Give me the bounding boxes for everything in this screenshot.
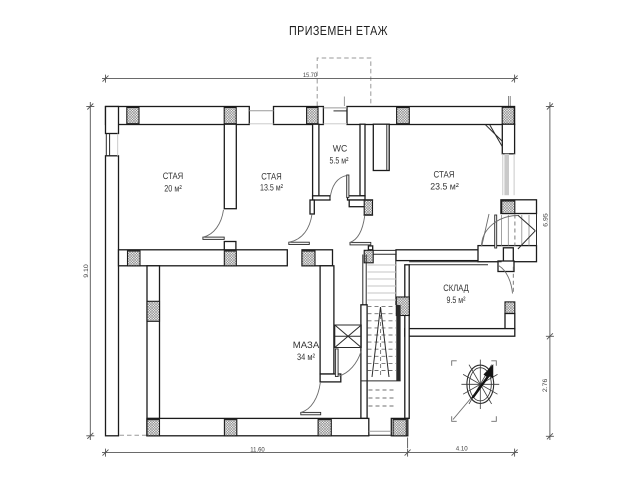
svg-text:34 м²: 34 м² xyxy=(297,352,315,362)
svg-text:СКЛАД: СКЛАД xyxy=(443,283,469,293)
svg-text:СТАЯ: СТАЯ xyxy=(163,171,184,181)
svg-text:23.5 м²: 23.5 м² xyxy=(430,181,459,191)
svg-text:ПРИЗЕМЕН ЕТАЖ: ПРИЗЕМЕН ЕТАЖ xyxy=(289,23,388,38)
svg-text:2.76: 2.76 xyxy=(542,378,549,392)
svg-text:15.70: 15.70 xyxy=(303,72,317,79)
svg-text:6.95: 6.95 xyxy=(542,213,549,227)
svg-text:11.60: 11.60 xyxy=(250,446,265,453)
svg-text:9.5 м²: 9.5 м² xyxy=(447,295,466,305)
svg-text:20 м²: 20 м² xyxy=(164,183,182,193)
svg-text:WC: WC xyxy=(333,144,348,154)
svg-text:МАЗА: МАЗА xyxy=(293,340,320,350)
svg-text:13.5 м²: 13.5 м² xyxy=(260,182,283,192)
svg-text:4.10: 4.10 xyxy=(456,445,468,452)
svg-text:СТАЯ: СТАЯ xyxy=(434,170,455,180)
svg-text:5.5 м²: 5.5 м² xyxy=(330,156,349,166)
svg-text:СТАЯ: СТАЯ xyxy=(261,171,282,181)
svg-text:9.10: 9.10 xyxy=(83,264,90,278)
